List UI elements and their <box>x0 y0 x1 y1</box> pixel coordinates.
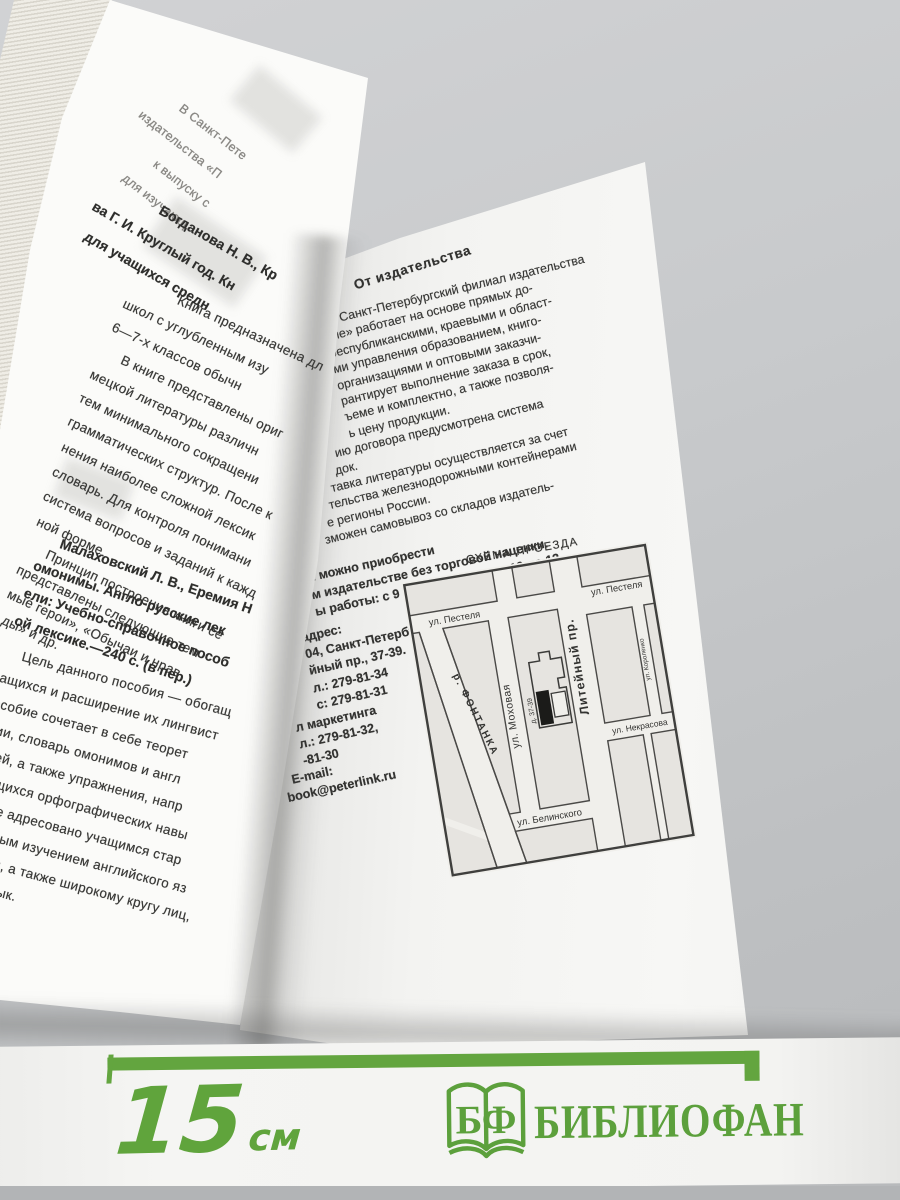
transit-map: СХЕМА ПРОЕЗДА <box>398 525 697 879</box>
publisher-paragraph: Санкт-Петербургский филиал издательства … <box>320 251 636 537</box>
ruler-tick-left <box>106 1055 113 1084</box>
ruler-value: 15 <box>112 1066 249 1176</box>
ruler-length-label: 15см <box>112 1068 307 1173</box>
courtyard <box>551 691 569 717</box>
logo-monogram: БФ <box>455 1097 516 1143</box>
open-book-icon: БФ <box>442 1075 531 1170</box>
logo-name: БИБЛИОФАН <box>534 1092 805 1150</box>
book-photo-scene: От издательства Санкт-Петербургский фили… <box>0 0 900 1200</box>
ruler-unit: см <box>247 1115 303 1159</box>
surface-edge <box>0 1186 900 1200</box>
ruler-strip: 15см БФ БИБЛИОФАН <box>0 1037 900 1193</box>
transit-map-drawing: ул. Пестеля ул. Пестеля ул. Моховая Лите… <box>401 542 697 879</box>
bibliofan-logo: БФ БИБЛИОФАН <box>442 1072 865 1170</box>
